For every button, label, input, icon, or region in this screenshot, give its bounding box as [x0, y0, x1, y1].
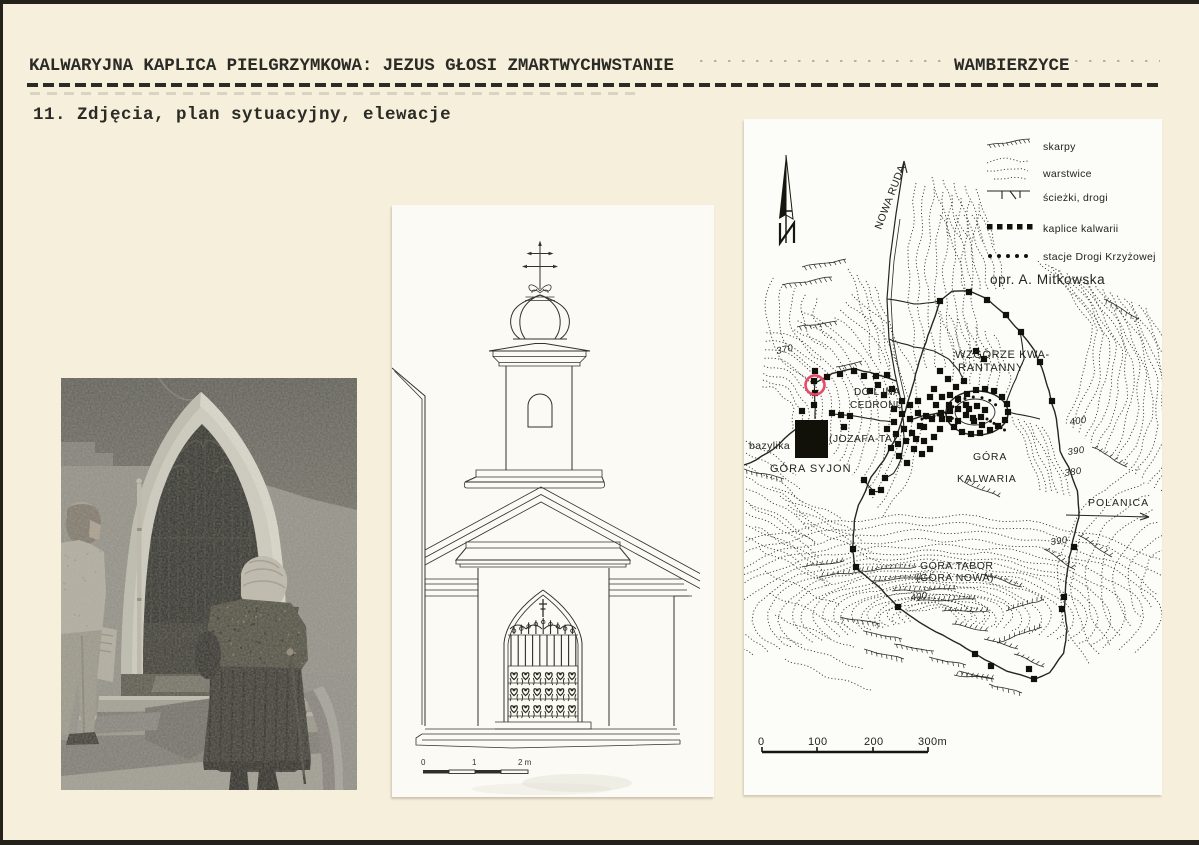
svg-text:(JOZAFA-TA): (JOZAFA-TA) — [829, 433, 896, 445]
svg-text:0: 0 — [758, 736, 765, 748]
svg-text:WZGÓRZE KWA-: WZGÓRZE KWA- — [955, 348, 1050, 361]
svg-text:ścieżki, drogi: ścieżki, drogi — [1043, 192, 1108, 204]
svg-text:RANTANNY: RANTANNY — [958, 362, 1024, 374]
svg-text:KALWARIA: KALWARIA — [957, 473, 1017, 485]
svg-text:2 m: 2 m — [518, 758, 532, 767]
svg-text:(GÓRA NOWA): (GÓRA NOWA) — [916, 571, 994, 584]
svg-text:skarpy: skarpy — [1043, 141, 1076, 153]
svg-text:GÓRA TABOR: GÓRA TABOR — [920, 559, 993, 572]
svg-text:GÓRA: GÓRA — [973, 450, 1007, 463]
svg-text:warstwice: warstwice — [1042, 168, 1092, 180]
svg-text:bazylika: bazylika — [749, 440, 790, 452]
svg-text:CEDRONU: CEDRONU — [850, 400, 903, 411]
svg-text:kaplice kalwarii: kaplice kalwarii — [1043, 223, 1118, 235]
svg-text:200: 200 — [864, 736, 884, 748]
svg-text:370: 370 — [775, 343, 794, 357]
svg-text:300m: 300m — [918, 736, 947, 748]
svg-text:100: 100 — [808, 736, 828, 748]
svg-text:DO-L INA: DO-L INA — [854, 387, 900, 398]
svg-text:NOWA RUDA: NOWA RUDA — [873, 163, 909, 231]
svg-text:opr. A. Mitkowska: opr. A. Mitkowska — [990, 272, 1105, 287]
svg-text:1: 1 — [472, 758, 477, 767]
svg-text:0: 0 — [421, 758, 426, 767]
svg-text:380: 380 — [1064, 466, 1083, 479]
svg-text:390: 390 — [1050, 535, 1069, 548]
svg-text:POLANICA: POLANICA — [1088, 497, 1149, 509]
svg-text:400: 400 — [1069, 415, 1088, 428]
svg-text:400: 400 — [910, 590, 929, 604]
svg-text:GÓRA SYJON: GÓRA SYJON — [770, 462, 852, 475]
svg-text:stacje Drogi Krzyżowej: stacje Drogi Krzyżowej — [1043, 251, 1156, 263]
svg-text:390: 390 — [1067, 445, 1086, 458]
